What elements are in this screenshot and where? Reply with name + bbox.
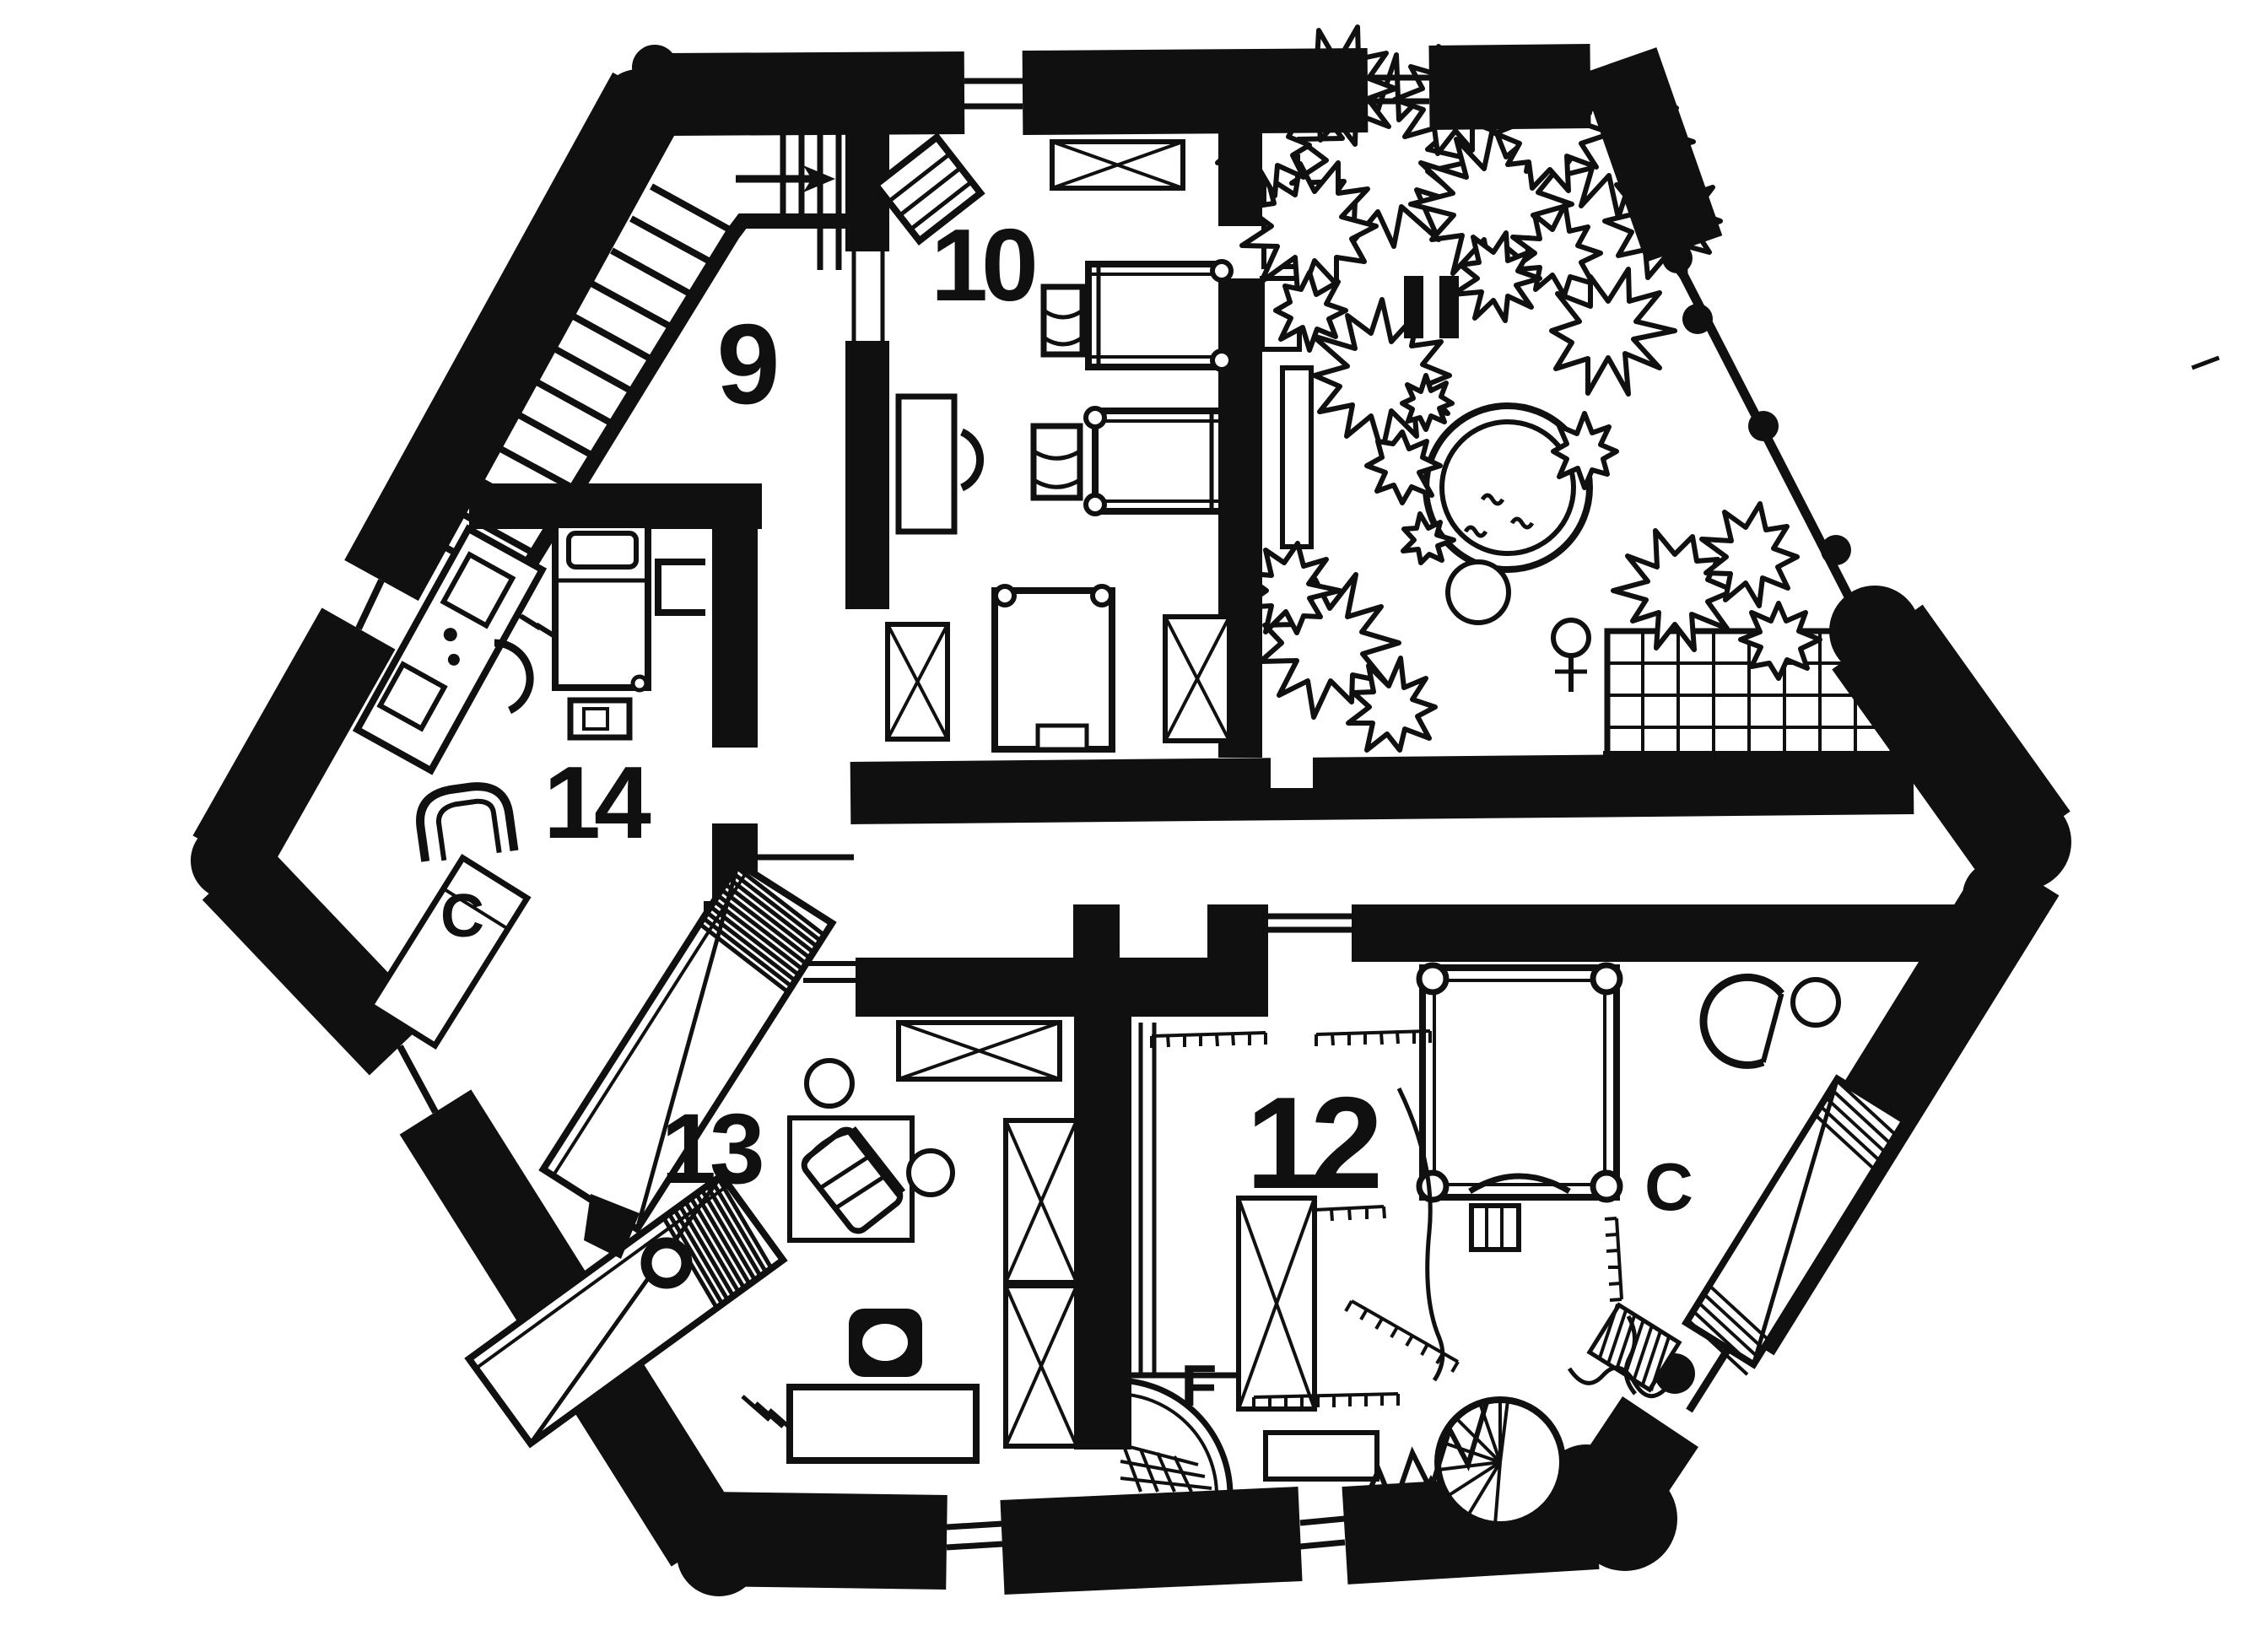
svg-text:C: C <box>1644 1149 1693 1224</box>
svg-text:14: 14 <box>543 745 651 860</box>
svg-text:F: F <box>1181 1352 1217 1418</box>
svg-text:12: 12 <box>1246 1070 1378 1216</box>
svg-text:C: C <box>440 883 484 950</box>
svg-text:9: 9 <box>716 300 780 428</box>
svg-text:13: 13 <box>661 1093 762 1205</box>
svg-text:10: 10 <box>931 208 1034 322</box>
